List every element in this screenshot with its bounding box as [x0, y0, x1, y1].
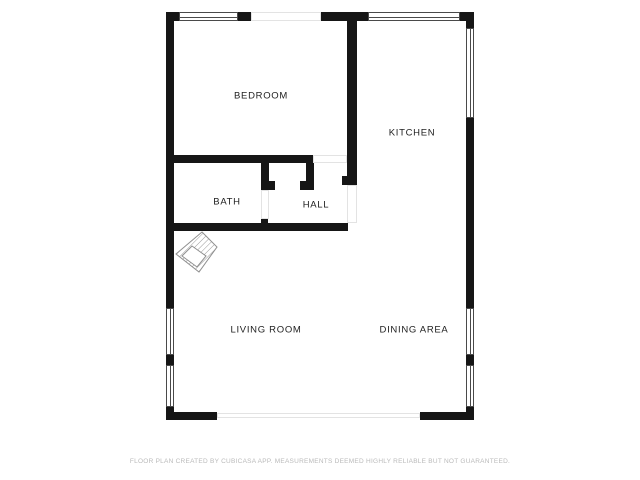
wall-right-wall-window-divider — [466, 355, 474, 365]
window-right-window-dining-1 — [466, 308, 474, 355]
opening-top-wall-opening — [251, 12, 321, 21]
room-label-dining-area: DINING AREA — [380, 325, 449, 336]
opening-bedroom-door-opening — [313, 155, 347, 163]
wall-bedroom-kitchen-divider — [347, 21, 357, 185]
window-mullion — [369, 17, 459, 18]
opening-bottom-wall-opening — [217, 413, 420, 418]
window-top-window-kitchen — [368, 12, 460, 21]
wall-top-wall-segment-2 — [321, 12, 368, 21]
window-mullion — [470, 366, 471, 406]
window-mullion — [170, 366, 171, 406]
window-top-window-bedroom — [179, 12, 238, 21]
window-left-window-living-2 — [166, 365, 174, 407]
wall-divider-door-jamb — [342, 176, 347, 185]
wall-hall-closet-stub-jamb — [300, 181, 306, 190]
floorplan-canvas: BEDROOMKITCHENBATHHALLLIVING ROOMDINING … — [0, 0, 640, 480]
window-right-window-dining-2 — [466, 365, 474, 407]
disclaimer-text: FLOOR PLAN CREATED BY CUBICASA APP. MEAS… — [0, 458, 640, 465]
wall-top-wall-left-corner — [166, 12, 179, 21]
wall-bath-hall-stub — [261, 163, 269, 190]
window-mullion — [470, 29, 471, 117]
wall-hall-closet-stub — [306, 163, 314, 190]
opening-bath-door-opening — [261, 190, 269, 219]
window-mullion — [470, 309, 471, 354]
window-mullion — [180, 17, 237, 18]
room-label-hall: HALL — [303, 200, 330, 211]
wall-bottom-wall-right — [420, 412, 474, 420]
wall-bottom-wall-left — [166, 412, 217, 420]
wall-left-wall-window-divider — [166, 355, 174, 365]
wall-right-wall-main — [466, 118, 474, 308]
room-label-bath: BATH — [213, 197, 240, 208]
window-left-window-living-1 — [166, 308, 174, 355]
room-label-kitchen: KITCHEN — [389, 128, 436, 139]
room-label-bedroom: BEDROOM — [234, 91, 288, 102]
room-label-living-room: LIVING ROOM — [230, 325, 301, 336]
window-mullion — [170, 309, 171, 354]
opening-hall-kitchen-opening — [347, 185, 357, 223]
wall-bedroom-bottom-wall — [166, 155, 313, 163]
window-right-window-kitchen — [466, 28, 474, 118]
wall-top-wall-segment-1 — [238, 12, 251, 21]
wall-bath-door-jamb-bump — [261, 219, 268, 223]
wall-bath-hall-stub-jamb — [269, 181, 275, 190]
compass-icon — [173, 229, 219, 275]
wall-right-wall-top-corner — [466, 12, 474, 28]
